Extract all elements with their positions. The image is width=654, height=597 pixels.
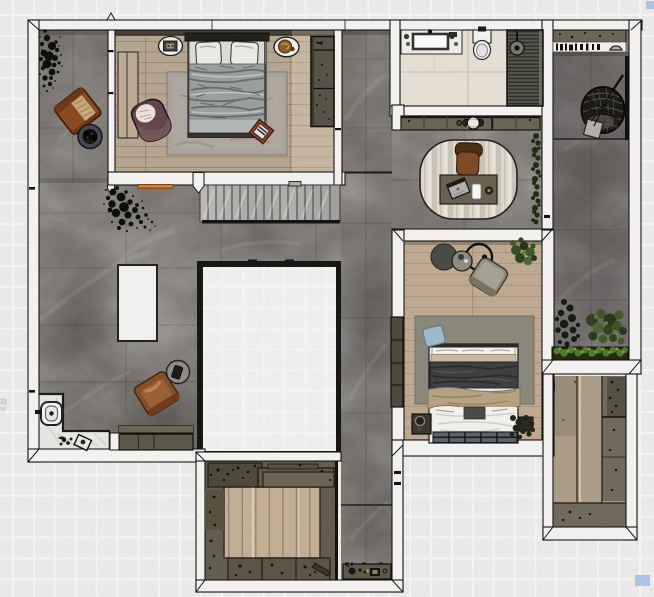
svg-text:特: 特 <box>0 406 6 414</box>
svg-text:持: 持 <box>0 397 7 406</box>
